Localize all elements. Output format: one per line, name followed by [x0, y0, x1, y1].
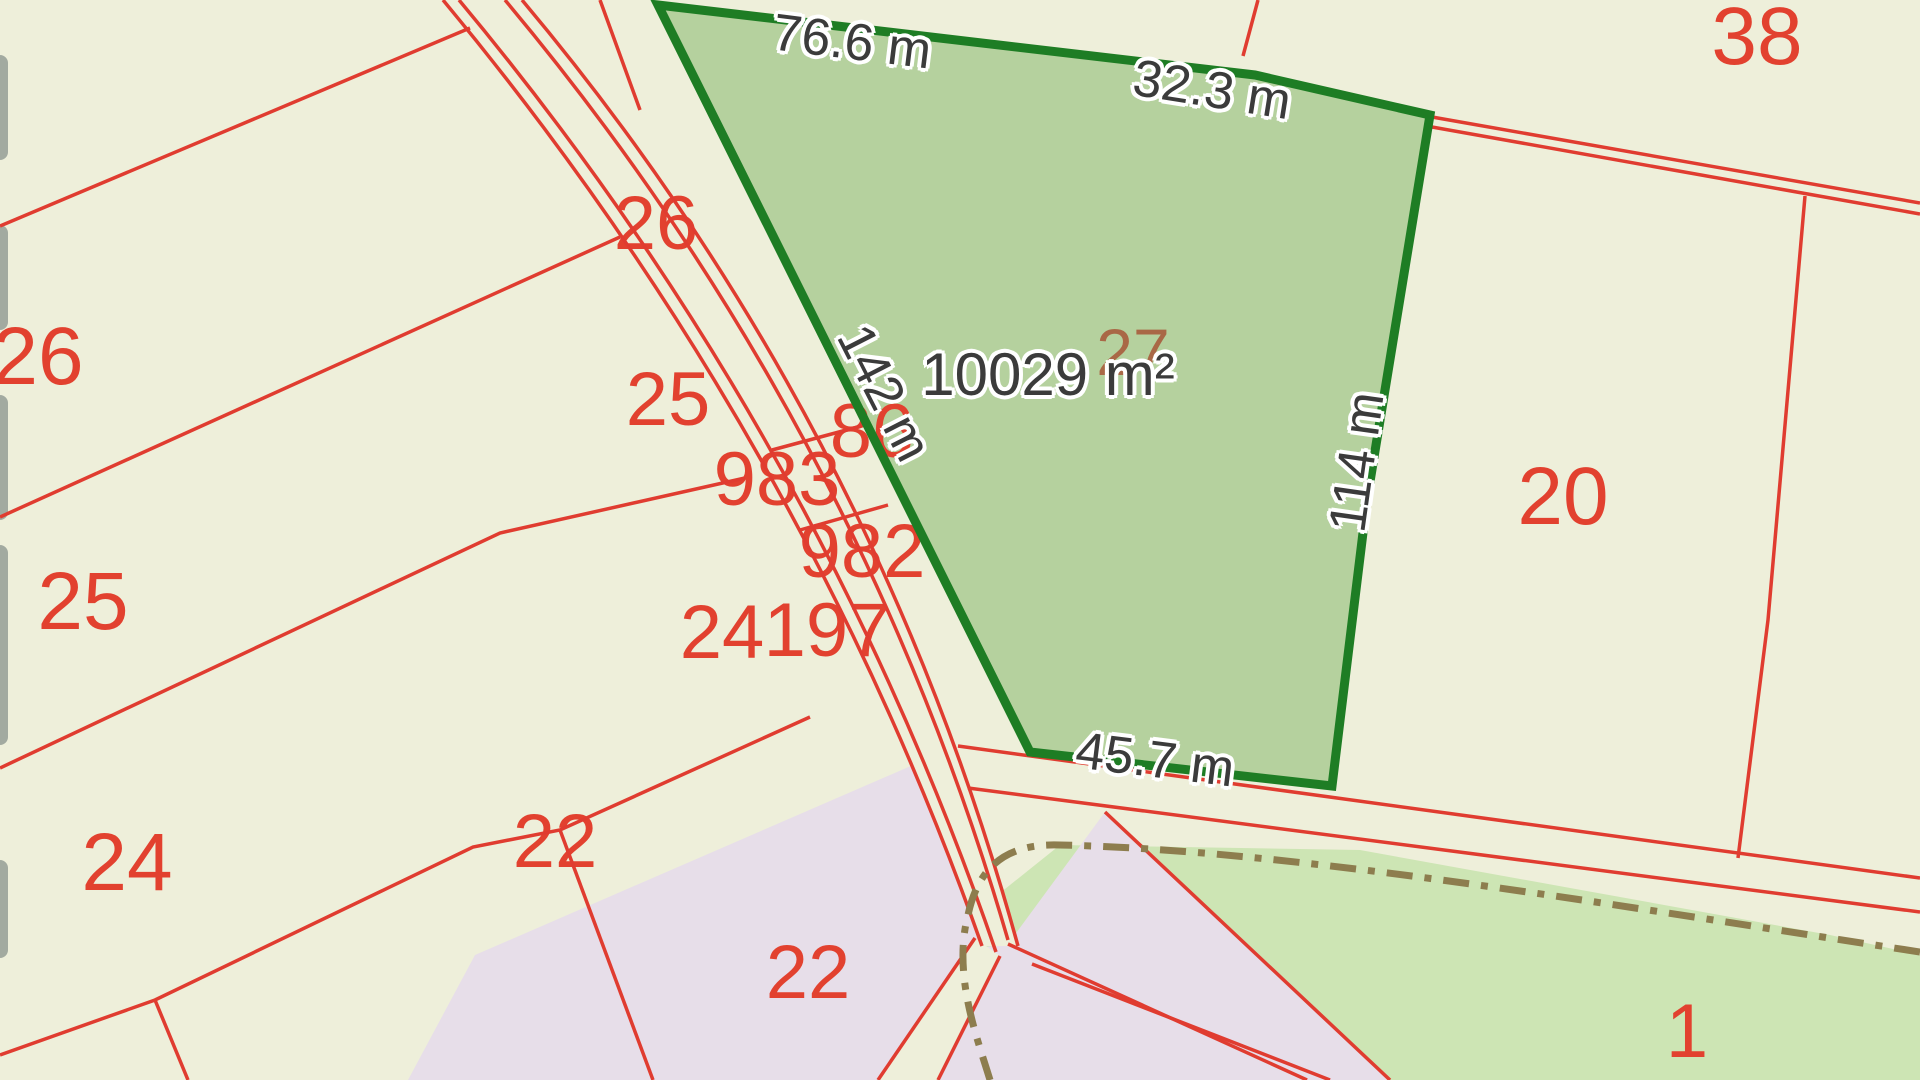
parcel-label-38: 38: [1711, 0, 1802, 78]
parcel-label-24-road: 24: [680, 595, 765, 671]
cadastral-map[interactable]: 26 25 24 26 25 983 86 982 24 197 22 22 2…: [0, 0, 1920, 1080]
parcel-label-25-left: 25: [37, 561, 128, 643]
parcel-label-982: 982: [799, 514, 926, 590]
parcel-label-22-upper: 22: [513, 804, 598, 880]
parcel-label-26-upper-left: 26: [0, 316, 84, 398]
parcel-numbers-layer: 26 25 24 26 25 983 86 982 24 197 22 22 2…: [0, 0, 1920, 1080]
parcel-label-197: 197: [764, 593, 891, 669]
parcel-label-20: 20: [1517, 456, 1608, 538]
selected-parcel-number: 27: [1096, 319, 1169, 385]
parcel-label-1: 1: [1666, 994, 1708, 1070]
parcel-label-983: 983: [714, 442, 841, 518]
parcel-label-24-left: 24: [81, 822, 172, 904]
parcel-label-86: 86: [830, 394, 915, 470]
parcel-label-26-road: 26: [614, 186, 699, 262]
parcel-label-22-lower: 22: [766, 935, 851, 1011]
parcel-label-25-road: 25: [626, 362, 711, 438]
